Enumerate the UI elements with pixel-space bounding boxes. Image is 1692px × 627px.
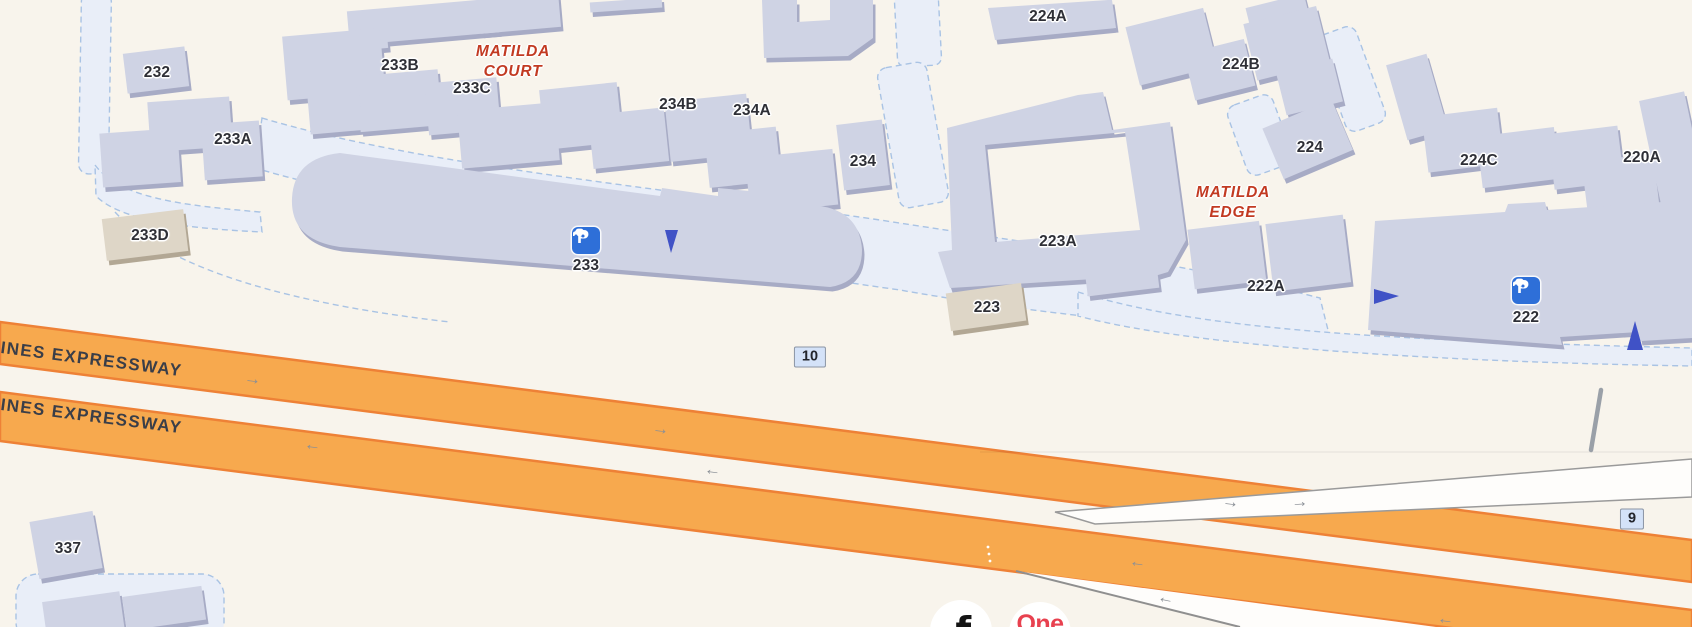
- map-layers: → → → → ← ← ← ← ←: [0, 0, 1692, 627]
- arrow-left-icon: ←: [1436, 608, 1455, 627]
- block-label-222a: 222A: [1247, 278, 1285, 296]
- map-canvas[interactable]: → → → → ← ← ← ← ← 232 233A 233B 233C 233…: [0, 0, 1692, 627]
- facebook-icon: f: [956, 610, 972, 627]
- exit-shield-9[interactable]: 9: [1620, 509, 1644, 530]
- estate-label-line: MATILDA: [1196, 183, 1270, 203]
- estate-label-line: COURT: [476, 62, 550, 82]
- block-label-224: 224: [1297, 139, 1323, 157]
- block-label-224a: 224A: [1029, 8, 1067, 26]
- parking-icon[interactable]: P: [572, 227, 600, 254]
- block-label-234b: 234B: [659, 96, 697, 114]
- block-label-233d: 233D: [131, 227, 169, 245]
- block-label-234: 234: [850, 153, 876, 171]
- block-label-223: 223: [974, 299, 1000, 317]
- block-label-232: 232: [144, 64, 170, 82]
- exit-shield-10[interactable]: 10: [794, 347, 826, 368]
- arrow-right-icon: →: [1290, 491, 1308, 511]
- estate-label-matilda-court: MATILDA COURT: [476, 42, 550, 82]
- car-icon: [1512, 277, 1527, 288]
- block-label-220a: 220A: [1623, 149, 1661, 167]
- onemap-logo-text: One: [1016, 610, 1063, 627]
- block-label-233c: 233C: [453, 80, 491, 98]
- block-label-337: 337: [55, 540, 81, 558]
- arrow-right-icon: →: [651, 418, 670, 439]
- arrow-left-icon: ←: [1128, 551, 1147, 572]
- arrow-left-icon: ←: [303, 434, 322, 455]
- block-label-224c: 224C: [1460, 152, 1498, 170]
- arrow-right-icon: →: [1221, 491, 1240, 512]
- block-label-222: 222: [1513, 309, 1539, 327]
- block-label-233a: 233A: [214, 131, 252, 149]
- block-label-233: 233: [573, 257, 599, 275]
- arrow-left-icon: ←: [703, 459, 722, 480]
- block-label-224b: 224B: [1222, 56, 1260, 74]
- estate-label-line: EDGE: [1196, 203, 1270, 223]
- block-label-223a: 223A: [1039, 233, 1077, 251]
- parking-icon[interactable]: P: [1512, 277, 1540, 304]
- arrow-right-icon: →: [243, 368, 262, 389]
- block-label-233b: 233B: [381, 57, 419, 75]
- estate-label-matilda-edge: MATILDA EDGE: [1196, 183, 1270, 223]
- estate-label-line: MATILDA: [476, 42, 550, 62]
- block-label-234a: 234A: [733, 102, 771, 120]
- car-icon: [572, 227, 587, 238]
